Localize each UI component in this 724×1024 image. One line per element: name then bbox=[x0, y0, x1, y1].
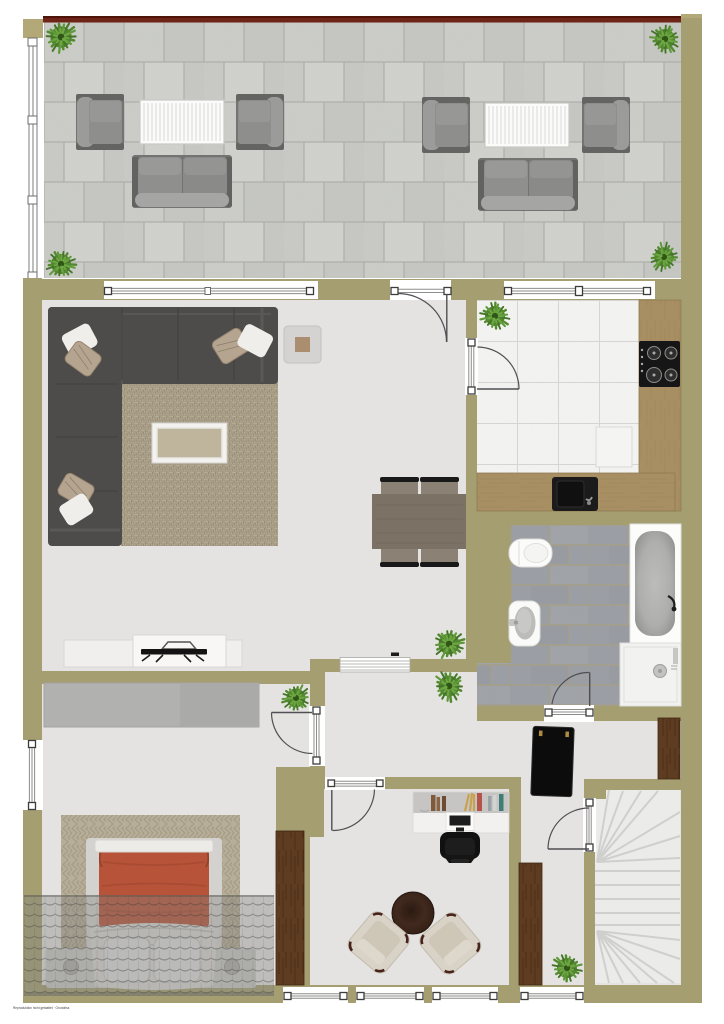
svg-text:Reproduktion nicht gestattet ·: Reproduktion nicht gestattet · Grundriss bbox=[13, 1006, 70, 1010]
